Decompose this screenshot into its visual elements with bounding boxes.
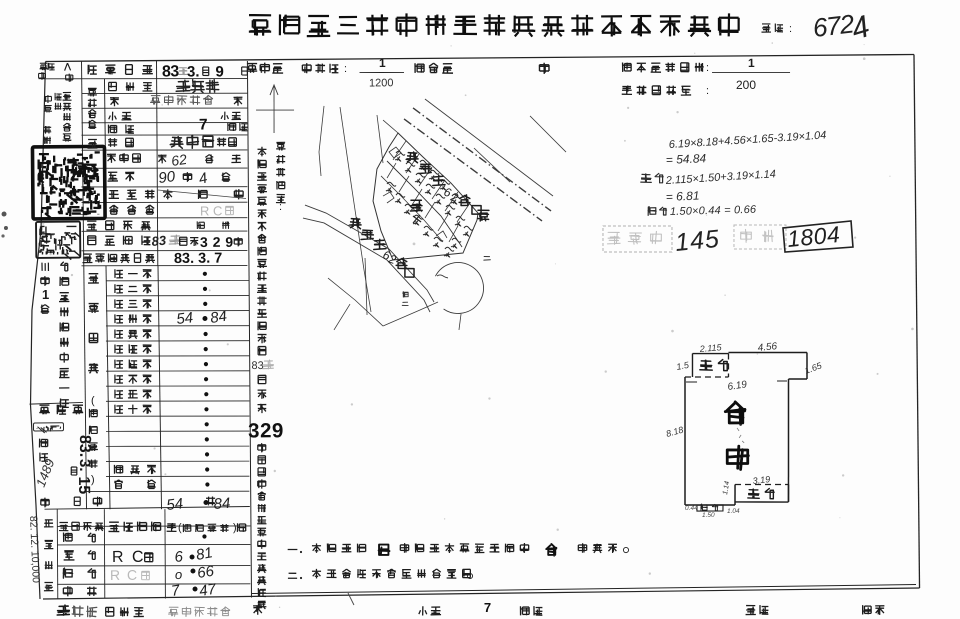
svg-text:9: 9 — [215, 63, 223, 80]
svg-text:62: 62 — [170, 151, 188, 169]
svg-text:7: 7 — [199, 116, 208, 133]
svg-text:81: 81 — [195, 544, 215, 564]
svg-text:83: 83 — [251, 360, 263, 372]
svg-text:R C: R C — [110, 567, 139, 583]
svg-text:83: 83 — [162, 63, 180, 80]
svg-text:3.: 3. — [187, 63, 200, 80]
svg-text:83: 83 — [151, 233, 168, 249]
svg-text:1.04: 1.04 — [727, 508, 740, 515]
svg-text:3.19: 3.19 — [752, 474, 771, 486]
svg-text:= 54.84: = 54.84 — [666, 151, 707, 167]
svg-text:4.56: 4.56 — [757, 341, 778, 354]
svg-text::: : — [706, 62, 709, 74]
svg-text:0.44: 0.44 — [685, 505, 698, 512]
svg-text:1: 1 — [42, 287, 49, 302]
svg-text:1200: 1200 — [369, 77, 394, 89]
svg-text:54: 54 — [176, 309, 195, 328]
svg-text::: : — [706, 85, 709, 97]
svg-text::: : — [344, 63, 347, 75]
svg-text:84: 84 — [213, 495, 231, 513]
svg-text:47: 47 — [198, 581, 218, 600]
svg-text:200: 200 — [736, 78, 756, 92]
svg-text:2.115: 2.115 — [698, 342, 723, 354]
svg-text:1.50×0.44 = 0.66: 1.50×0.44 = 0.66 — [670, 204, 757, 218]
svg-text:83. 3. 7: 83. 3. 7 — [174, 251, 223, 267]
svg-text:R C: R C — [200, 203, 223, 218]
svg-text:1: 1 — [748, 56, 755, 70]
svg-text::: : — [279, 201, 282, 213]
svg-text::: : — [789, 23, 792, 35]
svg-text:(: ( — [178, 522, 182, 534]
svg-text:1: 1 — [379, 56, 386, 70]
svg-text:7: 7 — [484, 600, 491, 615]
svg-text:90: 90 — [158, 168, 177, 187]
svg-text:3 2 9: 3 2 9 — [200, 234, 234, 250]
svg-text:54: 54 — [166, 495, 185, 514]
svg-text:o: o — [175, 567, 182, 582]
svg-text:84: 84 — [209, 308, 228, 327]
svg-text:1804: 1804 — [786, 221, 841, 252]
svg-text:329: 329 — [248, 419, 284, 442]
svg-text:66: 66 — [196, 563, 216, 582]
svg-text:145: 145 — [674, 225, 721, 257]
svg-text:1.50: 1.50 — [702, 512, 715, 519]
svg-text:): ) — [91, 474, 95, 486]
svg-text:): ) — [233, 522, 237, 534]
svg-text:= 6.81: = 6.81 — [665, 189, 699, 204]
svg-text:R C: R C — [112, 549, 146, 566]
svg-text:(: ( — [91, 395, 95, 407]
